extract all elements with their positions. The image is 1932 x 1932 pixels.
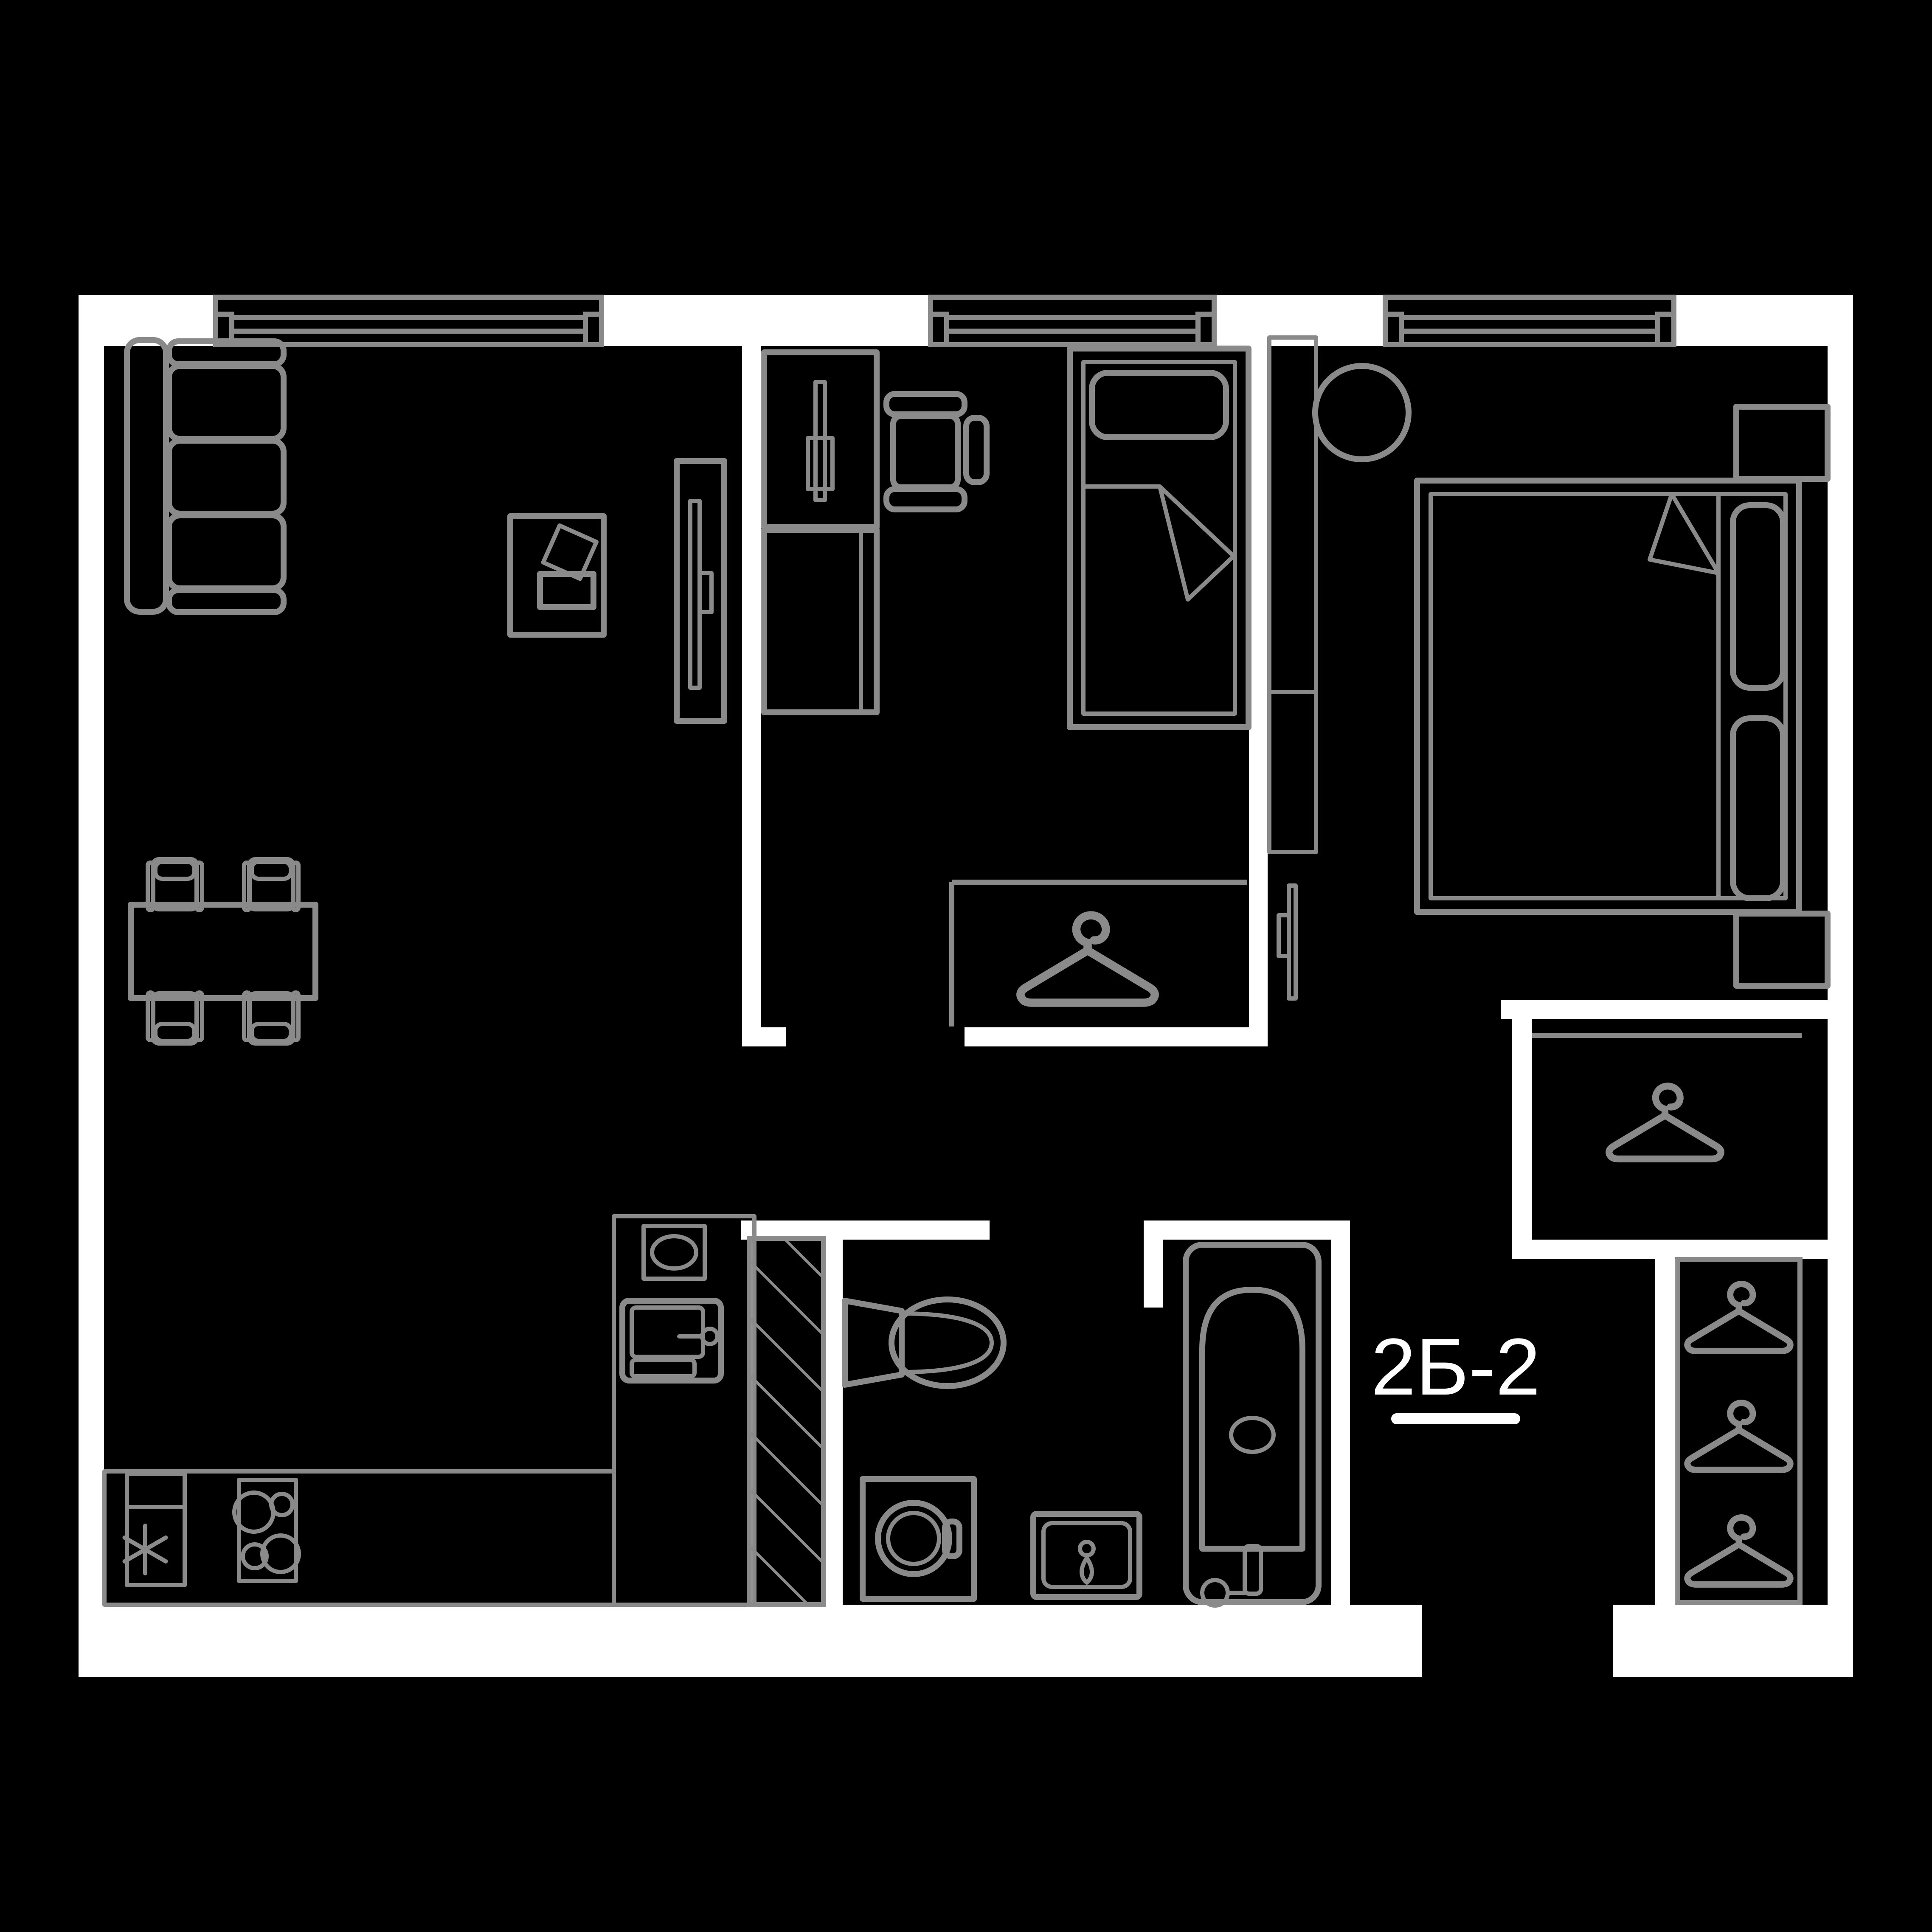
toilet	[845, 1299, 1004, 1386]
wall-middle-bottom	[965, 1027, 1249, 1046]
single-bed	[1070, 349, 1249, 727]
hanger-icon	[1687, 1284, 1791, 1351]
sofa	[127, 340, 284, 612]
dining-set	[131, 859, 315, 1043]
bottom-wall-seg-2	[1613, 1605, 1853, 1677]
snowflake-icon	[125, 1526, 166, 1573]
wardrobe-middle	[952, 882, 1247, 1026]
wardrobe-nook	[1532, 1035, 1802, 1159]
bottom-wall-seg-1	[79, 1605, 1422, 1677]
cooktop	[234, 1480, 299, 1581]
tv-console	[677, 461, 724, 721]
nightstand-top	[1736, 407, 1828, 479]
window-3	[1385, 297, 1674, 345]
wall-bath-left	[824, 1240, 843, 1605]
wall-bath-door-jamb	[1144, 1240, 1163, 1308]
sink-cabinet	[622, 1301, 721, 1381]
hallway-closet	[1678, 1260, 1800, 1603]
top-wall-seg-2	[602, 295, 931, 346]
blanket-fold	[1650, 494, 1718, 573]
floor-plan: 2Б-2	[0, 0, 1932, 1932]
kitchen-sink	[644, 1226, 705, 1279]
right-wall	[1828, 295, 1853, 1677]
wall-middle-bedroom	[1249, 340, 1268, 1046]
wall-closet-left	[1655, 1259, 1675, 1605]
wall-bath-right	[1331, 1221, 1350, 1605]
hanger-icon	[1687, 1518, 1791, 1585]
wall-nook-bottom	[1512, 1240, 1853, 1259]
desk-cabinet	[764, 530, 877, 712]
hanger-icon	[1687, 1403, 1791, 1470]
bathtub	[1186, 1245, 1319, 1606]
window-1	[216, 297, 602, 345]
wall-bedroom-bottom	[1501, 1000, 1853, 1019]
wall-nook-left	[1512, 1019, 1532, 1259]
top-wall-seg-4	[1674, 295, 1853, 346]
bedroom-cabinet	[1269, 337, 1316, 852]
washbasin	[1033, 1514, 1139, 1597]
pouf	[1315, 366, 1409, 459]
window-2	[931, 297, 1214, 345]
nightstand-bottom	[1736, 914, 1828, 986]
hanger-icon	[1021, 915, 1155, 1003]
pillow	[1092, 373, 1226, 437]
pillow	[1733, 505, 1783, 688]
wall-middle-door-stub	[742, 1027, 786, 1046]
ventilation-shaft	[749, 1238, 824, 1605]
left-wall	[79, 295, 104, 1677]
washing-machine	[863, 1479, 974, 1599]
wall-bath-top-right	[1144, 1221, 1343, 1240]
bedroom-tv	[1279, 886, 1296, 998]
wall-living-middle	[742, 340, 761, 1046]
floor-plan-page: 2Б-2	[0, 0, 1932, 1932]
office-chair	[886, 394, 987, 509]
desk-monitor	[816, 382, 825, 500]
unit-label: 2Б-2	[1371, 1322, 1540, 1412]
desk	[764, 352, 877, 527]
hanger-icon	[1609, 1086, 1721, 1159]
double-bed	[1417, 481, 1799, 912]
pillow	[1733, 718, 1783, 898]
fridge	[125, 1474, 185, 1585]
dining-table	[131, 905, 315, 998]
coffee-table	[510, 516, 604, 635]
kitchen-counter	[104, 1216, 754, 1605]
blanket-fold	[1160, 487, 1234, 599]
